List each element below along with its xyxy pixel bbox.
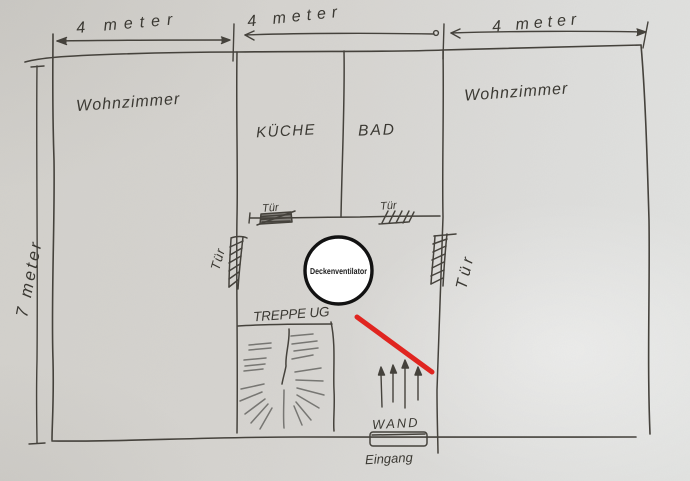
svg-text:Tür: Tür xyxy=(453,252,478,291)
svg-text:Eingang: Eingang xyxy=(365,450,414,468)
svg-text:7 meter: 7 meter xyxy=(12,238,46,319)
svg-text:Tür: Tür xyxy=(207,246,228,272)
svg-text:Deckenventilator: Deckenventilator xyxy=(310,266,368,276)
svg-text:Wohnzimmer: Wohnzimmer xyxy=(464,80,569,104)
svg-text:4 meter: 4 meter xyxy=(76,11,180,37)
svg-text:Wohnzimmer: Wohnzimmer xyxy=(76,91,181,115)
svg-text:KÜCHE: KÜCHE xyxy=(256,121,317,141)
svg-text:TREPPE UG: TREPPE UG xyxy=(253,304,330,324)
svg-text:BAD: BAD xyxy=(358,121,396,139)
svg-text:4 meter: 4 meter xyxy=(247,3,344,30)
svg-text:WAND: WAND xyxy=(372,415,420,432)
